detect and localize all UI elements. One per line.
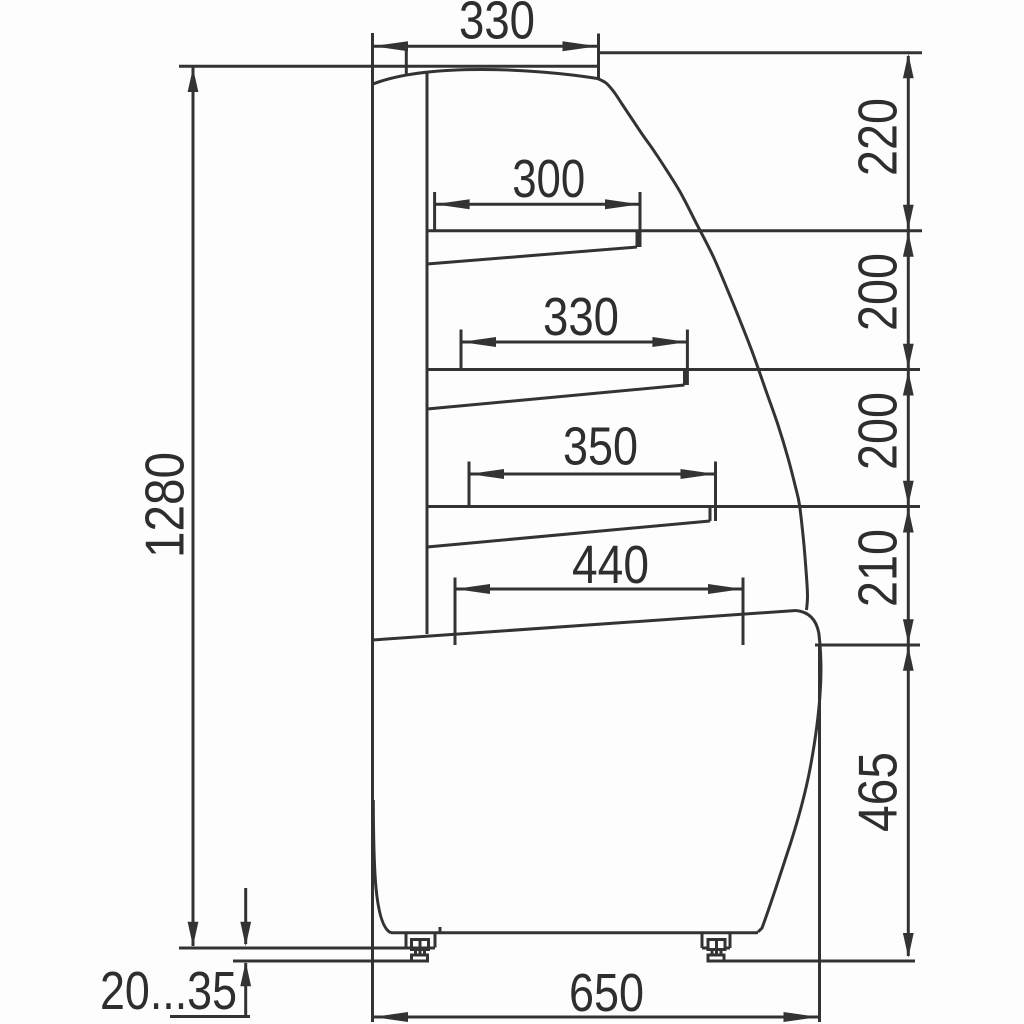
- svg-text:350: 350: [563, 417, 638, 477]
- svg-text:200: 200: [847, 253, 909, 331]
- svg-text:1280: 1280: [134, 452, 196, 558]
- svg-text:330: 330: [543, 287, 619, 347]
- svg-text:220: 220: [847, 98, 909, 176]
- svg-text:200: 200: [847, 392, 909, 470]
- svg-text:300: 300: [512, 149, 585, 209]
- svg-text:20...35: 20...35: [100, 961, 237, 1021]
- svg-text:210: 210: [847, 529, 909, 607]
- svg-text:330: 330: [459, 0, 535, 51]
- svg-text:440: 440: [572, 535, 649, 595]
- svg-text:650: 650: [569, 963, 644, 1023]
- svg-text:465: 465: [847, 752, 909, 832]
